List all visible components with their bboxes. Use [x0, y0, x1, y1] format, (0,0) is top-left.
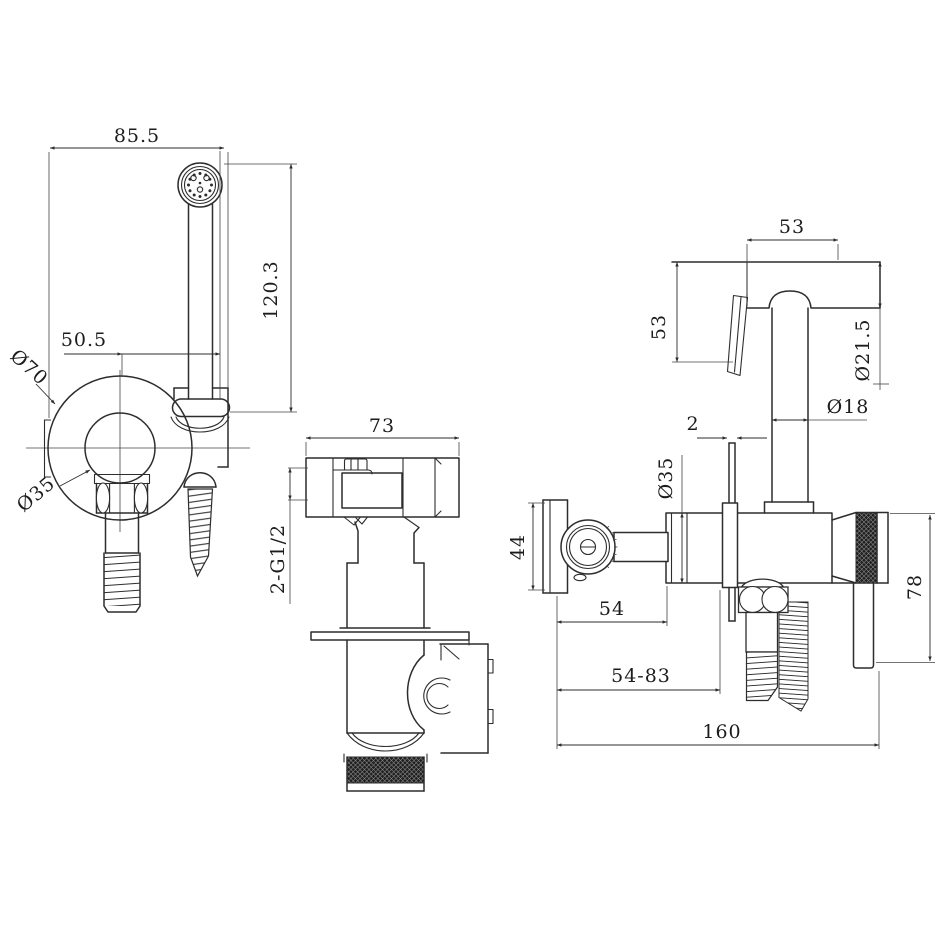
dim-handle-diameter: Ø18 [827, 396, 870, 418]
dim-adjust-range: 54-83 [611, 665, 671, 687]
dim-head-diameter: Ø21.5 [852, 319, 874, 382]
dim-handle-plate-height: 44 [507, 534, 529, 560]
shower-hose [779, 602, 808, 711]
dim-head-depth: 53 [779, 216, 805, 238]
dim-front-width: 85.5 [114, 125, 160, 147]
dim-side-width: 73 [369, 415, 395, 437]
dim-hook-drop: 53 [648, 314, 670, 340]
dim-wall-to-body: 54 [599, 598, 625, 620]
label-thread-spec: 2-G1/2 [267, 524, 289, 594]
dim-overall-depth: 160 [702, 721, 741, 743]
dim-valve-diameter: Ø35 [655, 457, 677, 500]
dim-front-offset: 50.5 [61, 329, 107, 351]
dim-grip-length: 78 [904, 574, 926, 600]
technical-drawing: 85.5 120.3 50.5 Ø70 Ø35 [0, 0, 950, 950]
dim-plate-thickness: 2 [686, 413, 699, 435]
dim-front-height: 120.3 [260, 260, 282, 319]
